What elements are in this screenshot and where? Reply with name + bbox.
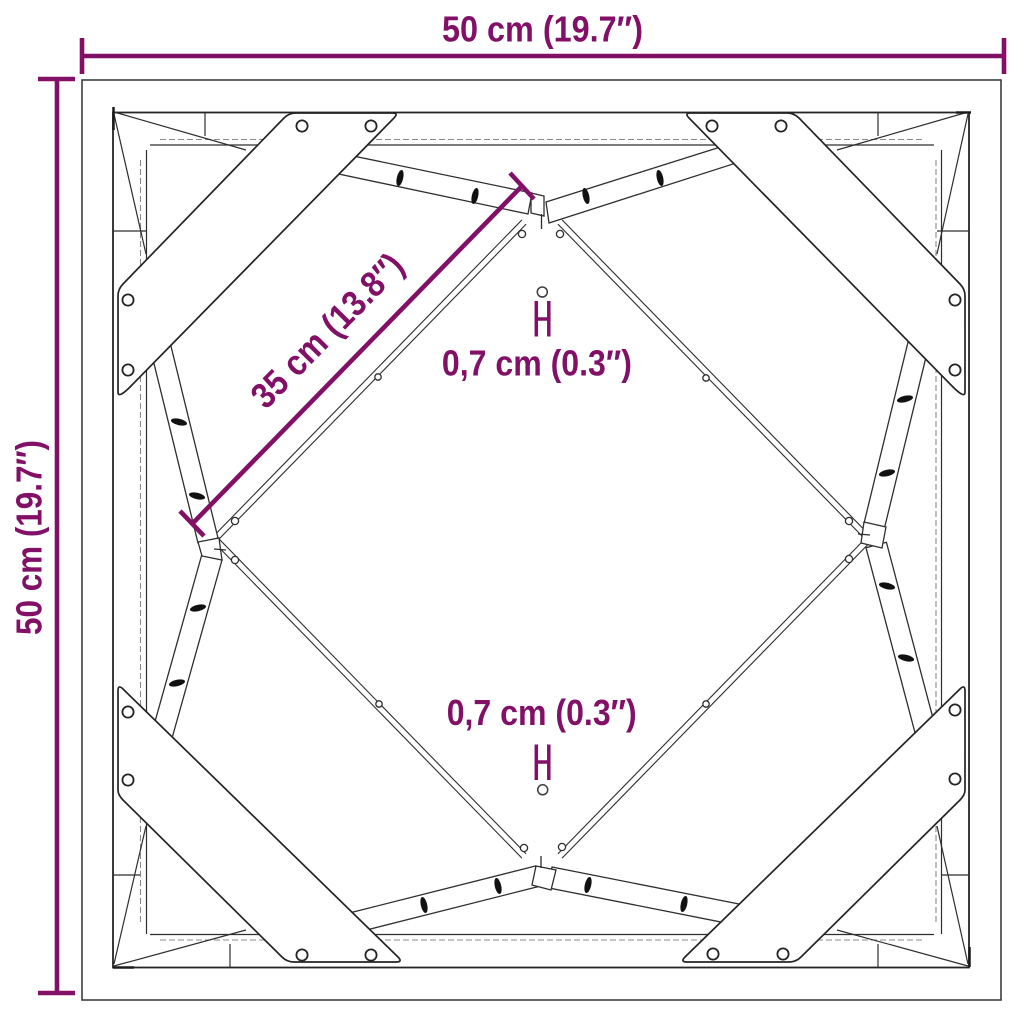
svg-text:0,7 cm (0.3″): 0,7 cm (0.3″): [442, 342, 632, 383]
svg-text:0,7 cm (0.3″): 0,7 cm (0.3″): [447, 692, 637, 733]
svg-text:50 cm (19.7″): 50 cm (19.7″): [442, 9, 643, 50]
svg-text:50 cm (19.7″): 50 cm (19.7″): [9, 440, 50, 635]
